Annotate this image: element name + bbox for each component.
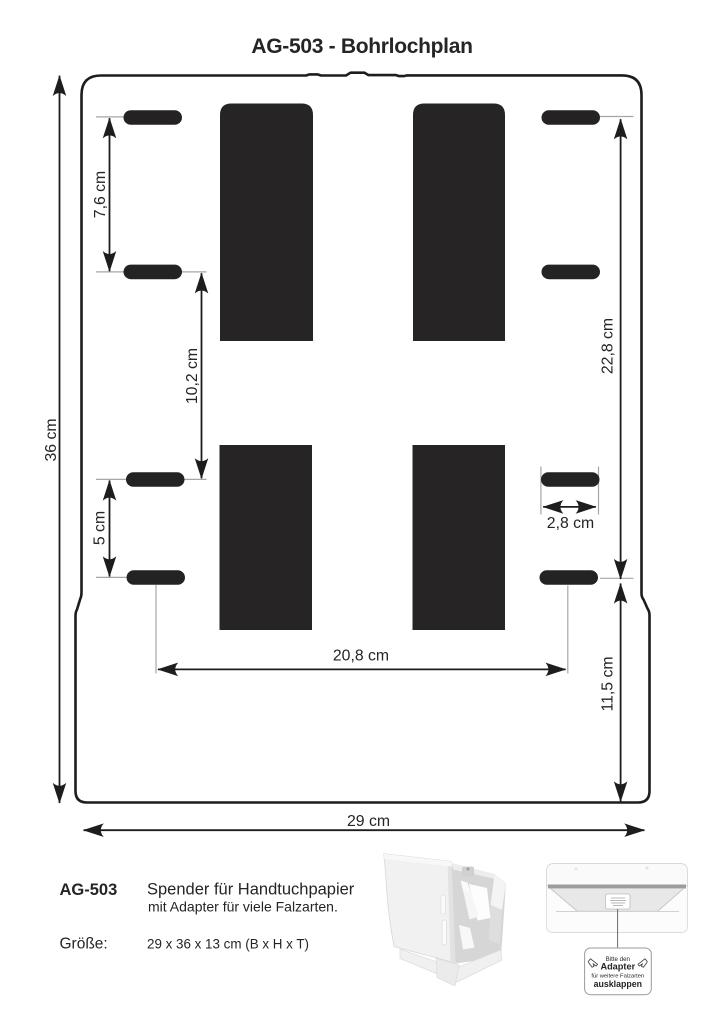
svg-text:2,8 cm: 2,8 cm [547, 515, 594, 532]
svg-text:5 cm: 5 cm [92, 511, 109, 545]
svg-text:7,6 cm: 7,6 cm [92, 171, 109, 218]
svg-text:29 x 36 x 13 cm (B x H x T): 29 x 36 x 13 cm (B x H x T) [147, 937, 309, 952]
svg-text:29 cm: 29 cm [347, 813, 390, 830]
svg-text:36 cm: 36 cm [43, 418, 60, 461]
svg-text:11,5 cm: 11,5 cm [600, 656, 617, 711]
svg-text:AG-503 - Bohrlochplan: AG-503 - Bohrlochplan [251, 35, 472, 58]
svg-text:mit Adapter für viele Falzarte: mit Adapter für viele Falzarten. [148, 899, 338, 915]
svg-text:20,8 cm: 20,8 cm [333, 648, 389, 665]
svg-text:22,8 cm: 22,8 cm [600, 318, 617, 374]
svg-text:Adapter: Adapter [600, 962, 635, 972]
svg-text:AG-503: AG-503 [60, 881, 118, 899]
svg-text:ausklappen: ausklappen [594, 979, 642, 989]
svg-text:10,2 cm: 10,2 cm [184, 348, 201, 404]
svg-text:Spender für Handtuchpapier: Spender für Handtuchpapier [147, 881, 355, 899]
svg-text:Größe:: Größe: [60, 936, 108, 953]
